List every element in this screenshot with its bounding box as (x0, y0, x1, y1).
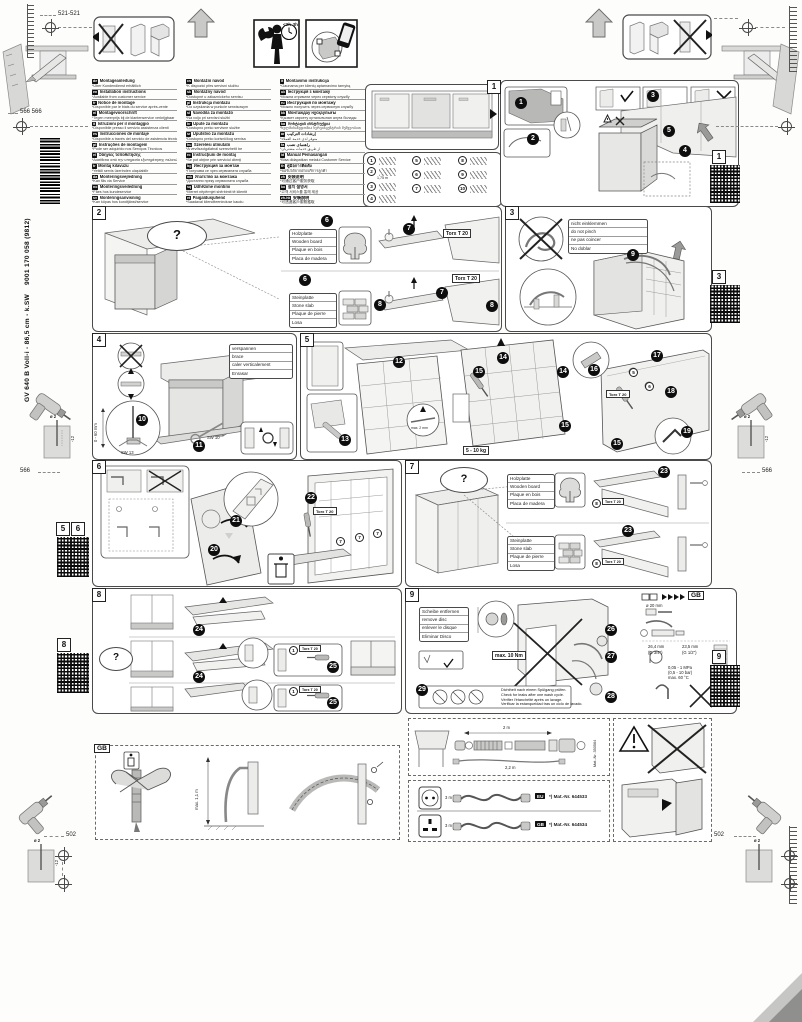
uk-socket-icon (419, 815, 441, 837)
panel-types-forbidden-box-left (93, 16, 175, 62)
ruler-strip-bottom-right (789, 826, 797, 904)
torque-label: max. 10 Nm (492, 651, 526, 660)
step-1: 1 (515, 97, 527, 109)
dash-line (714, 18, 738, 19)
language-note: *Bisa didapatkan melalui Customer Servic… (280, 158, 365, 162)
language-code-badge: th (280, 164, 285, 169)
dim-566-left: 566 (20, 468, 30, 474)
language-note: *Kan fås via Service (92, 179, 177, 183)
part-ref-7: 7 (336, 537, 345, 546)
language-note: *Do uzyskania w punkcie serwisowym (186, 105, 271, 109)
language-entry: sl Navodila za montažo *Na voljo pri ser… (186, 111, 271, 122)
language-list-col2: cs Montážní návod *K dispozici přes serv… (186, 79, 271, 205)
nut-large-label: 26,4 mm (648, 644, 664, 649)
panel-4-label: 4 (92, 333, 106, 347)
panel-5: 5 (300, 333, 712, 460)
question-mark: ? (113, 652, 119, 663)
stone-slab-labels: Steinplatte Stone slab Plaque de pierre … (507, 536, 555, 571)
step-25: 25 (327, 661, 339, 673)
step-8: 8 (374, 299, 386, 311)
language-code-badge: bg (186, 164, 192, 169)
language-note: *Se pot obţine prin serviciul clienţi (186, 158, 271, 162)
dash-line (30, 126, 88, 127)
panel-1-main: 1 2 3 5 4 (500, 80, 739, 207)
language-entry: ru Инструкция по монтажу *Можно получить… (280, 100, 365, 111)
label-line: verspannen (230, 345, 292, 353)
do-not-pinch-labels: nicht einklemmen do not pinch ne pas coi… (568, 219, 648, 254)
part-number: 10 (458, 184, 467, 193)
label-line: Wooden board (508, 483, 554, 491)
part-sketch (424, 157, 441, 165)
side-panel-warning-box (613, 718, 712, 842)
cord-gb-region-badge: GB (535, 821, 546, 827)
panel-9-label: 9 (405, 588, 419, 602)
pliers-icon (111, 768, 170, 832)
label-line: Placa de madera (290, 255, 336, 262)
step-18: 18 (665, 386, 677, 398)
question-cloud: ? (99, 647, 133, 671)
panel-8-art (93, 589, 401, 713)
language-entry: en Installation instructions *Available … (92, 90, 177, 101)
drill-target-icon (16, 121, 27, 132)
step-21: 21 (230, 515, 242, 527)
dim-line (8, 113, 18, 114)
dim-566-566: 566 566 (20, 109, 42, 115)
language-entry: ka მონტაჟის ინსტრუქცია *ხელმისაწვდომია ს… (280, 121, 365, 132)
panel-7-label: 7 (405, 460, 419, 474)
question-cloud: ? (440, 467, 488, 493)
panel-9: 9 (405, 588, 737, 714)
part-ref-5: 5 (629, 368, 638, 377)
language-note: *Gaunama per klientų aptarnavimo tarnybą (280, 84, 365, 88)
language-entry: pl Instrukcja montażu *Do uzyskania w pu… (186, 100, 271, 111)
drill-dia-label-right: ø 2 (744, 414, 750, 419)
language-note: *Достапно преку сервисната служба (186, 179, 271, 183)
gap-label: max. 2 mm (411, 426, 428, 430)
step-24: 24 (193, 624, 205, 636)
label-line: Plaque de pierre (508, 554, 554, 562)
panel-8: 8 (92, 588, 402, 714)
language-title: Инструкция за монтаж (194, 164, 240, 169)
temp-max-label: max. 60 °C (668, 675, 689, 680)
dash-line (755, 27, 785, 28)
language-list-col3: lt Montavimo instrukcija *Gaunama per kl… (280, 79, 365, 205)
part-number: 7 (412, 184, 421, 193)
wooden-board-labels: Holzplatte Wooden board Plaque en bois P… (507, 474, 555, 509)
label-line: Eliminar Disco (420, 633, 468, 640)
panel-3: 3 nicht einklemmen do not pinch ne pa (505, 206, 712, 332)
label-line: Wooden board (290, 238, 336, 246)
drill-target-icon (58, 850, 69, 861)
panel-6-art (93, 461, 401, 586)
panel-2-label: 2 (92, 206, 106, 220)
screw-ref: 1 (289, 687, 298, 696)
language-note: *可透過客戶服務獲取 (280, 200, 365, 204)
gb-section-ref: GB (688, 591, 704, 600)
language-note: *Dostupno preko servisne službe (186, 126, 271, 130)
language-list-col1: de Montageanleitung *Über Kundendienst e… (92, 79, 177, 205)
dim-line (40, 15, 56, 16)
language-entry: uk Інструкція з монтажу *Можна отримати … (280, 90, 365, 101)
language-entry: fr Notice de montage *Disponible par le … (92, 100, 177, 111)
part-number: 2 (367, 167, 376, 176)
arrow-up-icon-right (584, 7, 614, 39)
dim-502-left: 502 (66, 832, 76, 838)
panel-6: 6 (92, 460, 402, 587)
language-entry: lt Montavimo instrukcija *Gaunama per kl… (280, 79, 365, 90)
drill-target-icon (781, 121, 792, 132)
drill-target-icon (742, 22, 753, 33)
drill-depth-label-left: -12 (70, 426, 75, 442)
model-id-vertical: GV 640 B Voll-i - 86,5 cm - k.SW (24, 290, 31, 402)
ruler-strip-top-right (789, 6, 797, 72)
kitchen-niche-art (366, 85, 498, 149)
question-mark: ? (173, 227, 181, 242)
part-sketch (470, 157, 487, 165)
phone-scan-app-icon-box (305, 19, 358, 68)
label-line: Holzplatte (508, 475, 554, 483)
language-note: *از طریق خدمات مشتریان (280, 147, 365, 151)
language-note: *Über Kundendienst erhältlich (92, 84, 177, 88)
language-note: *K dispozici přes servisní službu (186, 84, 271, 88)
part-number: 9 (458, 170, 467, 179)
step-29: 29 (416, 684, 428, 696)
step-4: 4 (679, 145, 691, 157)
language-note: *Disponible par le biais du service aprè… (92, 105, 177, 109)
part-ref-7: 7 (373, 529, 382, 538)
question-cloud: ? (147, 221, 207, 251)
drill-depth-block-bottom-right (744, 844, 778, 888)
drill-target-icon (784, 850, 795, 861)
leak-check-text: Dichtheit nach einem Spülgang prüfen. Ch… (501, 688, 582, 707)
language-note: *Dostupné u zákazníckeho servisu (186, 95, 271, 99)
part-number: 4 (367, 194, 376, 203)
panel-4: 4 ve (92, 333, 297, 460)
label-line: Plaque en bois (508, 492, 554, 500)
wooden-board-labels: Holzplatte Wooden board Plaque en bois P… (289, 229, 337, 264)
extension-length2-label: 2,2 m (505, 765, 515, 770)
step-28: 28 (605, 691, 617, 703)
language-note: *Disponible a través del servicio de asi… (92, 137, 177, 141)
language-entry: et Paigaldusjuhend *Saadaval klienditeen… (186, 195, 271, 205)
torx-t20-label: Torx T 20 (299, 686, 321, 693)
panel-6-label: 6 (92, 460, 106, 474)
step-22: 22 (305, 492, 317, 504)
language-entry: no Monteringsveiledning *Fåes hos kundes… (92, 185, 177, 196)
language-title: Інструкція з монтажу (288, 90, 330, 95)
language-entry: sq Udhëzime montimi *Merret nëpërmjet sh… (186, 185, 271, 196)
cord-gb-length: 3 m (445, 823, 452, 828)
hole-dia-label: ø 20 mm (646, 603, 663, 608)
torx-t20-label: Torx T 20 (313, 507, 337, 515)
language-note: *Na voljo pri servisni službi (186, 116, 271, 120)
language-note: *Fåes hos kundeservice (92, 190, 177, 194)
part-number: 1 (367, 156, 376, 165)
gb-panel-art (96, 746, 399, 839)
label-line: ne pas coincer (569, 237, 647, 245)
step-17: 17 (651, 350, 663, 362)
language-note: *可通过客户服务获取 (280, 179, 365, 183)
language-entry: kk Монтаждау нұсқаулығы *Қызмет көрсету … (280, 111, 365, 122)
label-line: Stone slab (508, 545, 554, 553)
label-line: Losa (290, 319, 336, 326)
installation-manual-page: 521-521 <2h-3h (0, 0, 802, 1022)
step-14b: 14 (557, 366, 569, 378)
part-number: 3 (367, 182, 376, 191)
torx-t20-label: Torx T 20 (602, 558, 624, 565)
part-sketch (379, 157, 396, 165)
step-7b: 7 (436, 287, 448, 299)
drill-target-icon (784, 878, 795, 889)
drill-dia-label-bottom-left: ø 2 (34, 838, 40, 843)
language-title: Montaj kılavuzu (98, 164, 128, 169)
qr-9-label: 9 (712, 650, 726, 664)
label-line: do not pinch (569, 228, 647, 236)
language-entry: id Manual Pemasangan *Bisa didapatkan me… (280, 153, 365, 164)
language-note: *Yetkili servis üzerinden ulaşılabilir (92, 169, 177, 173)
step-5: 5 (663, 125, 675, 137)
language-note: *Διατίθεται από την υπηρεσία εξυπηρέτηση… (92, 158, 177, 162)
dim-line (742, 472, 760, 473)
extension-length-label: 2 m (503, 725, 510, 730)
time-estimate-label: <2h-3h (283, 22, 298, 27)
part-number: 8 (458, 156, 467, 165)
trash-icon (124, 752, 139, 769)
label-line: Plaque en bois (290, 247, 336, 255)
qr-code-8 (57, 653, 89, 693)
panel-1-niche-image (365, 84, 499, 150)
dim-line (38, 472, 60, 473)
step-7: 7 (403, 223, 415, 235)
drill-dia-label-left: ø 2 (50, 414, 56, 419)
part-sketch (470, 171, 487, 179)
part-ref-6: 6 (645, 382, 654, 391)
language-note: *ขอรับได้จากฝ่ายบริการลูกค้า (280, 169, 365, 173)
step-11: 11 (193, 440, 205, 452)
language-entry: da Monteringsvejledning *Kan fås via Ser… (92, 174, 177, 185)
qr-code-9 (710, 665, 740, 707)
brace-labels: verspannen brace caler verticalement Enr… (229, 344, 293, 379)
part-sketch (424, 171, 441, 179)
drill-icon-bottom-right (740, 788, 786, 840)
arrow-up-icon-left (186, 7, 216, 39)
label-line: Scheibe entfernen (420, 608, 468, 616)
language-note: *Saadaval klienditeeninduse kaudu (186, 200, 271, 204)
step-26: 26 (605, 624, 617, 636)
sw13-label: SW 13 (121, 450, 134, 455)
language-entry: th คู่มือการติดตั้ง *ขอรับได้จากฝ่ายบริก… (280, 164, 365, 175)
label-line: Enrasar (230, 370, 292, 377)
language-title: คู่มือการติดตั้ง (287, 164, 312, 169)
label-line: Holzplatte (290, 230, 336, 238)
part-number: 6 (412, 170, 421, 179)
label-line: Placa de madera (508, 500, 554, 507)
step-9: 9 (627, 249, 639, 261)
language-entry: bg Инструкция за монтаж *Получава се чре… (186, 164, 271, 175)
dim-line (734, 836, 756, 837)
language-code-badge: sk (186, 90, 192, 95)
power-cord-art (409, 781, 609, 841)
label-line: Stone slab (290, 302, 336, 310)
extension-matnr-label: Mat.-Nr. 350564 (593, 727, 597, 767)
power-cord-panel: 3 m EU *) Mat.-Nr. 644533 3 m GB *) Mat.… (408, 780, 610, 842)
cord-gb-matnr: *) Mat.-Nr. 644534 (549, 822, 587, 827)
stone-slab-labels: Steinplatte Stone slab Plaque de pierre … (289, 293, 337, 328)
stone-icon (339, 291, 371, 325)
panel-types-forbidden-box-right (622, 14, 712, 60)
language-note: *Dostupno preko korisničkog servisa (186, 137, 271, 141)
cord-length-label: 1,75 m (377, 176, 388, 180)
torx-t20-label: Torx T 20 (299, 645, 321, 652)
language-note: *Kan köpas hos kundtjänst/service (92, 200, 177, 204)
part-sketch (470, 185, 487, 193)
language-entry: fa راهنمای نصب *از طریق خدمات مشتریان (280, 142, 365, 153)
qr-code-1 (710, 165, 740, 203)
gb-drain-panel: GB (95, 745, 400, 840)
gb-panel-label: GB (94, 744, 110, 753)
language-entry: nl Montagevoorschrift *Tegen meerprijs b… (92, 111, 177, 122)
book-ref-icon (642, 594, 685, 600)
drill-dia-label-bottom-right: ø 2 (754, 838, 760, 843)
step-2: 2 (527, 133, 539, 145)
label-line: Steinplatte (290, 294, 336, 302)
language-entry: zh-hk 安裝說明 *可透過客戶服務獲取 (280, 195, 365, 205)
drill-depth-label-right: -12 (764, 426, 769, 442)
language-entry: sr Uputstvo za montažu *Dostupno preko k… (186, 132, 271, 143)
nut-small-label: 23,5 mm (682, 644, 698, 649)
step-23b: 23 (622, 525, 634, 537)
language-note: *Қызмет көрсету орталығынан алуға болады (280, 116, 365, 120)
part-sketch (379, 168, 396, 176)
step-15b: 15 (559, 420, 571, 432)
step-12: 12 (393, 356, 405, 368)
label-line: Losa (508, 562, 554, 569)
eu-socket-icon (419, 787, 441, 809)
step-15c: 15 (611, 438, 623, 450)
qr-3-label: 3 (712, 270, 726, 284)
label-line: caler verticalement (230, 362, 292, 370)
qr-6-label: 6 (71, 522, 85, 536)
label-line: nicht einklemmen (569, 220, 647, 228)
doc-number-vertical: 9001 170 058 (9812) (24, 205, 31, 285)
language-note: *متوفر لدى خدمة العملاء (280, 137, 365, 141)
language-note: *Disponibile presso il servizio assisten… (92, 126, 177, 130)
step-13: 13 (339, 434, 351, 446)
language-entry: ar إرشادات التركيب *متوفر لدى خدمة العمل… (280, 132, 365, 143)
cord-eu-matnr: *) Mat.-Nr. 644533 (549, 794, 587, 799)
thread-small-label: (G 1/2") (682, 650, 697, 655)
step-16: 16 (588, 364, 600, 376)
question-mark: ? (461, 473, 468, 485)
panel-3-label: 3 (505, 206, 519, 220)
language-note: *고객 서비스를 통해 제공 (280, 190, 365, 194)
step-27: 27 (605, 651, 617, 663)
cord-eu-region-badge: EU (535, 793, 545, 799)
language-entry: es Instrucciones de montaje *Disponible … (92, 132, 177, 143)
step-20: 20 (208, 544, 220, 556)
dim-line (44, 836, 64, 837)
language-note: *Tegen meerprijs bij de klantenservice v… (92, 116, 177, 120)
language-note: *Available from customer service (92, 95, 177, 99)
screw-ref-8: 8 (592, 499, 601, 508)
qr-code-5-6 (57, 537, 89, 577)
label-line: remove disc (420, 616, 468, 624)
leak-line: Verificar la estanqueidad tras un ciclo … (501, 702, 582, 707)
language-entry: mk Упатство за монтажа *Достапно преку с… (186, 174, 271, 185)
tree-icon (339, 227, 371, 263)
language-entry: sk Montážny návod *Dostupné u zákaznícke… (186, 90, 271, 101)
label-line: enlever le disque (420, 625, 468, 633)
drain-hose-height (204, 757, 264, 830)
torx-t20-label: Torx T 20 (443, 229, 471, 238)
step-15: 15 (473, 366, 485, 378)
torx-t20-label: Torx T 20 (452, 274, 480, 283)
language-entry: hu Szerelési útmutató *A vevőszolgálatná… (186, 142, 271, 153)
step-8b: 8 (486, 300, 498, 312)
language-entry: it Istruzioni per il montaggio *Disponib… (92, 121, 177, 132)
part-sketch (379, 195, 396, 203)
drain-max-height-label: max. 1,1 m (194, 776, 199, 810)
label-line: Steinplatte (508, 537, 554, 545)
step-3: 3 (647, 90, 659, 102)
step-14: 14 (497, 352, 509, 364)
language-entry: tr Montaj kılavuzu *Yetkili servis üzeri… (92, 164, 177, 175)
panel-8-label: 8 (92, 588, 106, 602)
language-entry: pt Instruções de montagem *Pode ser adqu… (92, 142, 177, 153)
thread-large-label: (G 3/4") (648, 650, 663, 655)
qr-8-label: 8 (57, 638, 71, 652)
panel-7: 7 (405, 460, 712, 587)
dash-line (62, 862, 63, 876)
language-note: *A vevőszolgálatnál szerezhető be (186, 147, 271, 151)
dim-top-width: 521-521 (58, 11, 80, 17)
step-10: 10 (136, 414, 148, 426)
drain-hose-arch (292, 762, 383, 824)
dash-line (58, 27, 92, 28)
language-note: *Можно получить через сервисную службу (280, 105, 365, 109)
torx-t20-label: Torx T 20 (602, 498, 624, 505)
remove-disc-labels: Scheibe entfernen remove disc enlever le… (419, 607, 469, 642)
language-note: *Можна отримати через сервісну службу (280, 95, 365, 99)
language-note: *Pode ser adquirido nos Serviços Técnico… (92, 147, 177, 151)
language-code-badge: tr (92, 164, 97, 169)
step-25b: 25 (327, 697, 339, 709)
language-entry: sv Monteringsanvisning *Kan köpas hos ku… (92, 195, 177, 205)
drill-target-icon (58, 878, 69, 889)
sw10-label: SW 10 (207, 435, 220, 440)
part-ref-7: 7 (355, 533, 364, 542)
label-line: Plaque de pierre (290, 311, 336, 319)
language-entry: hr Upute za montažu *Dostupno preko serv… (186, 121, 271, 132)
step-19: 19 (681, 426, 693, 438)
screw-ref-8: 8 (592, 559, 601, 568)
qr-5-label: 5 (56, 522, 70, 536)
language-note: *ხელმისაწვდომია სერვისცენტრის მეშვეობით (280, 126, 365, 130)
language-title: Montážny návod (194, 90, 226, 95)
language-entry: ro Instrucţiuni de montaj *Se pot obţine… (186, 153, 271, 164)
qr-1-label: 1 (712, 150, 726, 164)
language-note: *Получава се чрез сервизната служба (186, 169, 271, 173)
cord-eu-length: 3 m (445, 795, 452, 800)
weight-label: 5 - 10 kg (463, 446, 489, 455)
qr-code-3 (710, 285, 740, 323)
hose-extension-panel: 2 m 2,2 m Mat.-Nr. 350564 (408, 718, 610, 776)
trash-icon (268, 554, 294, 584)
dim-502-right: 502 (714, 832, 724, 838)
language-entry: de Montageanleitung *Über Kundendienst e… (92, 79, 177, 90)
drill-target-icon (45, 22, 56, 33)
step-6b: 6 (299, 274, 311, 286)
